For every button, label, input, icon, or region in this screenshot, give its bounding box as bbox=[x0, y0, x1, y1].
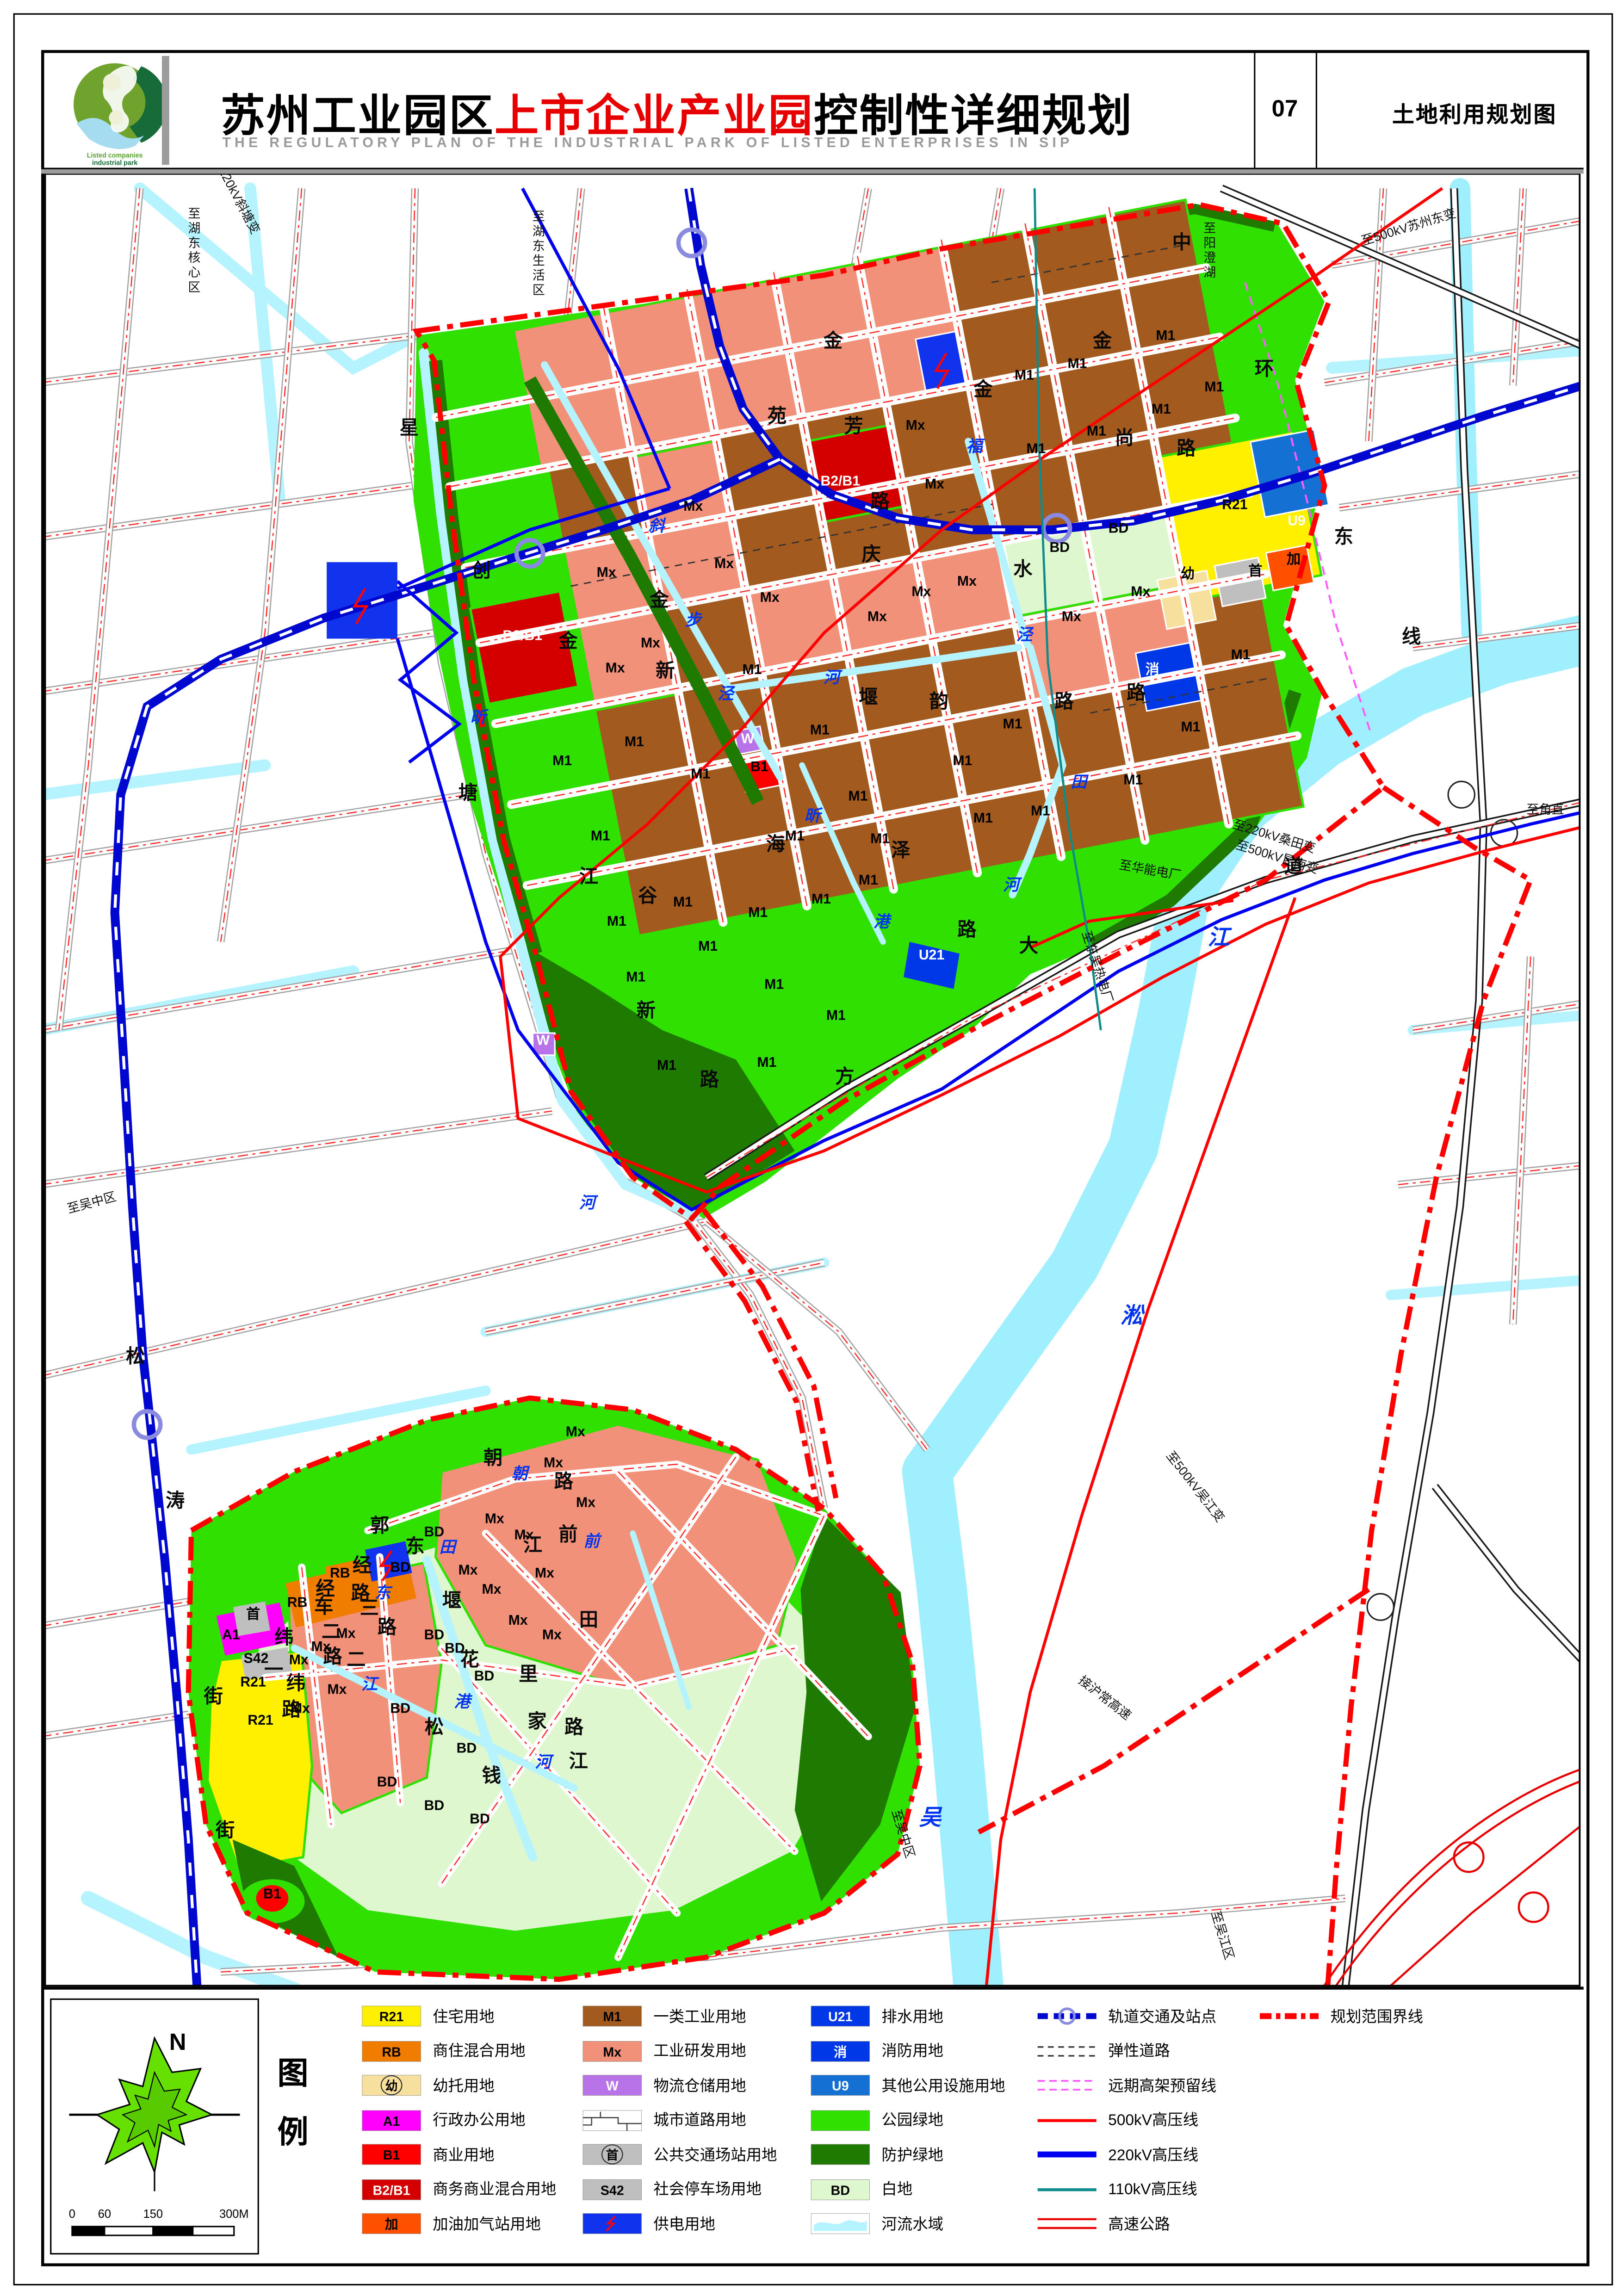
sip-logo: Listed companies industrial park bbox=[56, 56, 197, 168]
legend-label: 高速公路 bbox=[1108, 2213, 1170, 2235]
map-label: 里 bbox=[519, 1664, 538, 1685]
legend-item-500kV高压线: 500kV高压线 bbox=[1038, 2108, 1199, 2132]
map-label: Mx bbox=[542, 1628, 562, 1643]
map-label: 纬 bbox=[286, 1672, 305, 1694]
legend-label: 白地 bbox=[881, 2178, 912, 2200]
map-label: BD bbox=[1050, 540, 1070, 555]
legend-symbol: BD bbox=[811, 2178, 870, 2199]
map-label: 路 bbox=[1054, 691, 1074, 712]
legend-item-220kV高压线: 220kV高压线 bbox=[1038, 2143, 1199, 2166]
svg-text:M1: M1 bbox=[603, 2010, 621, 2024]
map-label: 港 bbox=[454, 1693, 472, 1711]
map-label: M1 bbox=[1026, 441, 1046, 457]
map-label: 幼 bbox=[1181, 566, 1195, 582]
legend-label: 住宅用地 bbox=[433, 2005, 495, 2027]
map-label: W bbox=[741, 731, 755, 746]
svg-text:RB: RB bbox=[382, 2044, 401, 2059]
legend-label: 弹性道路 bbox=[1108, 2040, 1170, 2062]
map-label: M1 bbox=[625, 734, 644, 749]
map-label: 港 bbox=[873, 913, 892, 931]
map-label: 路 bbox=[700, 1069, 719, 1090]
legend-symbol: B2/B1 bbox=[362, 2178, 421, 2199]
legend-symbol: Mx bbox=[583, 2040, 642, 2061]
svg-text:B2/B1: B2/B1 bbox=[373, 2183, 410, 2197]
map-label: 松 bbox=[425, 1716, 444, 1738]
map-label: W bbox=[537, 1033, 550, 1048]
legend-symbol bbox=[1038, 2110, 1096, 2130]
map-label: 家 bbox=[527, 1710, 547, 1732]
map-label: 芳 bbox=[844, 415, 863, 437]
svg-text:W: W bbox=[606, 2079, 619, 2094]
map-label: M1 bbox=[607, 914, 626, 929]
legend-item-U9: U9其他公用设施用地 bbox=[811, 2073, 1005, 2097]
map-label: 经 bbox=[316, 1578, 335, 1599]
map-label: 加 bbox=[1287, 551, 1301, 567]
map-label: 至角直 bbox=[1527, 803, 1564, 817]
map-label: 二 bbox=[347, 1649, 365, 1670]
map-label: 路 bbox=[957, 919, 977, 940]
map-label: M1 bbox=[673, 894, 693, 910]
svg-text:消: 消 bbox=[834, 2044, 847, 2059]
map-label: 金 bbox=[649, 589, 669, 611]
map-label: M1 bbox=[1015, 368, 1034, 383]
legend-label: 规划范围界线 bbox=[1331, 2005, 1423, 2027]
legend-item-远期高架预留线: 远期高架预留线 bbox=[1038, 2073, 1216, 2097]
legend-item-弹性道路: 弹性道路 bbox=[1038, 2039, 1170, 2062]
map-label: 江 bbox=[569, 1750, 588, 1771]
map-label: M1 bbox=[1156, 328, 1175, 343]
map-label: 星 bbox=[400, 417, 419, 438]
map-label: 前 bbox=[583, 1532, 602, 1550]
legend-label: 公共交通场站用地 bbox=[653, 2143, 777, 2166]
map-label: M1 bbox=[811, 891, 831, 907]
header-divider-bar bbox=[162, 56, 169, 165]
map-label: 金 bbox=[1092, 330, 1112, 352]
map-label: 钱 bbox=[482, 1765, 501, 1786]
svg-text:A1: A1 bbox=[383, 2113, 400, 2128]
map-label: Mx bbox=[606, 661, 625, 676]
legend-item-公园绿地: 公园绿地 bbox=[811, 2108, 943, 2132]
svg-text:U9: U9 bbox=[832, 2079, 849, 2094]
legend-item-M1: M1一类工业用地 bbox=[583, 2005, 746, 2028]
map-label: M1 bbox=[785, 828, 805, 843]
legend-label: 加油加气站用地 bbox=[433, 2213, 541, 2235]
legend-symbol bbox=[1038, 2006, 1096, 2027]
legend-label: 社会停车场用地 bbox=[653, 2178, 762, 2200]
map-label: Mx bbox=[683, 499, 703, 514]
svg-text:B1: B1 bbox=[383, 2148, 400, 2163]
map-label: M1 bbox=[1068, 356, 1087, 371]
map-label: 郭 bbox=[370, 1515, 389, 1536]
map-label: 街 bbox=[215, 1819, 235, 1841]
map-label: 泽 bbox=[891, 839, 910, 860]
legend-symbol bbox=[811, 2144, 870, 2165]
legend-symbol: RB bbox=[362, 2040, 421, 2061]
map-label: BD bbox=[424, 1798, 445, 1813]
svg-text:幼: 幼 bbox=[385, 2079, 398, 2093]
legend-symbol bbox=[1038, 2178, 1096, 2199]
map-label: 金 bbox=[973, 379, 993, 400]
legend-symbol: A1 bbox=[362, 2110, 421, 2130]
map-label: BD bbox=[470, 1811, 490, 1826]
map-label: M1 bbox=[552, 753, 572, 768]
legend-symbol bbox=[583, 2213, 642, 2234]
map-label: R21 bbox=[248, 1713, 273, 1728]
map-label: Mx bbox=[566, 1424, 585, 1440]
legend-label: 轨道交通及站点 bbox=[1108, 2005, 1216, 2027]
map-label: 金 bbox=[823, 330, 843, 352]
legend-label: 其他公用设施用地 bbox=[881, 2074, 1005, 2097]
map-label: 海 bbox=[766, 834, 785, 855]
map-label: 堰 bbox=[442, 1590, 461, 1611]
map-label: M1 bbox=[859, 873, 878, 888]
map-label: Mx bbox=[289, 1652, 309, 1668]
map-label: 创 bbox=[471, 560, 491, 581]
map-label: 江 bbox=[1208, 925, 1232, 950]
map-label: Mx bbox=[336, 1626, 356, 1641]
map-label: R21 bbox=[240, 1674, 266, 1690]
map-label: 田 bbox=[579, 1609, 598, 1630]
legend-item-高速公路: 高速公路 bbox=[1038, 2212, 1170, 2235]
map-label: 步 bbox=[685, 611, 703, 629]
svg-text:Mx: Mx bbox=[603, 2044, 621, 2059]
map-label: B1 bbox=[750, 759, 768, 774]
map-label: BD bbox=[1109, 521, 1129, 536]
map-label: 东 bbox=[375, 1584, 393, 1602]
map-label: M1 bbox=[1204, 379, 1224, 395]
legend-label: 商务商业混合用地 bbox=[433, 2178, 556, 2200]
map-label: 田 bbox=[1071, 773, 1089, 791]
legend-label: 排水用地 bbox=[881, 2005, 943, 2027]
logo-text-2: industrial park bbox=[92, 159, 138, 167]
map-label: 道 bbox=[1284, 855, 1303, 877]
map-label: 韵 bbox=[929, 691, 948, 712]
map-label: 路 bbox=[1127, 682, 1146, 703]
legend-symbol bbox=[583, 2110, 642, 2130]
legend-symbol: M1 bbox=[583, 2006, 642, 2027]
map-label: Mx bbox=[641, 636, 660, 651]
map-label: 路 bbox=[554, 1471, 574, 1492]
title-part-1: 苏州工业园区 bbox=[221, 93, 495, 141]
legend-symbol: B1 bbox=[362, 2144, 421, 2165]
map-label: Mx bbox=[514, 1527, 533, 1542]
legend-item-B2/B1: B2/B1商务商业混合用地 bbox=[362, 2177, 557, 2201]
map-label: M1 bbox=[1231, 647, 1251, 662]
map-label: M1 bbox=[973, 811, 993, 826]
map-label: M1 bbox=[1031, 803, 1050, 818]
map-label: Mx bbox=[544, 1455, 563, 1470]
map-label: 经 bbox=[353, 1554, 372, 1576]
map-label: 谷 bbox=[638, 885, 657, 906]
map-label: Mx bbox=[311, 1639, 330, 1654]
page-title: 苏州工业园区上市企业产业园控制性详细规划 bbox=[221, 80, 1133, 144]
map-label: 淞 bbox=[1121, 1304, 1145, 1328]
land-use-map: 至220kV斜塘变至湖东核心区至湖东生活区至阳澄湖至500kV苏州东变至角直至2… bbox=[44, 173, 1580, 1987]
map-label: M1 bbox=[698, 939, 718, 954]
map-label: 至湖东生活区 bbox=[533, 210, 545, 297]
map-label: 福 bbox=[966, 438, 985, 456]
map-label: 朝 bbox=[483, 1447, 502, 1468]
map-label: B2/B1 bbox=[502, 628, 542, 644]
header-bottom-rule bbox=[41, 168, 1584, 174]
map-label: M1 bbox=[591, 828, 610, 843]
legend-label: 防护绿地 bbox=[881, 2143, 943, 2166]
legend-item-RB: RB商住混合用地 bbox=[362, 2039, 526, 2062]
legend-label: 供电用地 bbox=[653, 2213, 715, 2235]
map-label: 线 bbox=[1402, 626, 1421, 647]
legend-label: 城市道路用地 bbox=[653, 2109, 746, 2131]
legend-symbol bbox=[1038, 2040, 1096, 2061]
legend-symbol: 加 bbox=[362, 2213, 421, 2234]
legend-symbol bbox=[811, 2110, 870, 2130]
map-label: R21 bbox=[1222, 497, 1247, 513]
legend-item-河流水域: 河流水域 bbox=[811, 2212, 943, 2235]
map-label: Mx bbox=[597, 565, 616, 580]
map-label: U21 bbox=[919, 947, 944, 963]
legend-symbol bbox=[811, 2213, 870, 2234]
map-label: Mx bbox=[867, 609, 887, 624]
map-label: RB bbox=[330, 1566, 350, 1581]
map-label: 至阳澄湖 bbox=[1203, 222, 1216, 279]
svg-text:首: 首 bbox=[606, 2148, 619, 2162]
svg-text:U21: U21 bbox=[828, 2010, 853, 2024]
map-label: Mx bbox=[458, 1563, 478, 1578]
sheet-number: 07 bbox=[1254, 97, 1316, 124]
map-label: 纬 bbox=[274, 1627, 293, 1648]
map-label: 斜 bbox=[648, 517, 666, 535]
map-label: U9 bbox=[1288, 514, 1306, 529]
map-label: 前 bbox=[558, 1524, 577, 1545]
legend-item-规划范围界线: 规划范围界线 bbox=[1260, 2005, 1423, 2028]
page-subtitle: THE REGULATORY PLAN OF THE INDUSTRIAL PA… bbox=[222, 136, 1073, 152]
map-label: BD bbox=[390, 1560, 410, 1575]
legend-item-供电用地: 供电用地 bbox=[583, 2212, 715, 2235]
legend-symbol bbox=[1038, 2144, 1096, 2165]
map-label: 松 bbox=[126, 1346, 145, 1367]
legend-item-防护绿地: 防护绿地 bbox=[811, 2143, 943, 2166]
map-label: Mx bbox=[576, 1495, 595, 1510]
map-label: B2/B1 bbox=[821, 474, 861, 489]
legend-label: 公园绿地 bbox=[881, 2109, 943, 2131]
map-label: M1 bbox=[849, 788, 868, 804]
legend-label: 一类工业用地 bbox=[653, 2005, 746, 2027]
map-label: Mx bbox=[760, 590, 780, 605]
legend-label: 幼托用地 bbox=[433, 2074, 495, 2097]
map-label: M1 bbox=[1087, 424, 1106, 439]
legend-symbol: 消 bbox=[811, 2040, 870, 2061]
map-label: 环 bbox=[1255, 358, 1274, 379]
map-label: A1 bbox=[222, 1628, 240, 1643]
map-label: 东 bbox=[405, 1535, 424, 1557]
map-label: M1 bbox=[1123, 772, 1143, 787]
map-label: M1 bbox=[1152, 402, 1171, 417]
map-label: 消 bbox=[1146, 662, 1159, 677]
map-label: 路 bbox=[378, 1616, 397, 1638]
legend-label: 行政办公用地 bbox=[433, 2109, 525, 2131]
map-label: Mx bbox=[1131, 584, 1150, 599]
map-label: M1 bbox=[810, 722, 830, 737]
map-label: 大 bbox=[1019, 935, 1038, 956]
map-label: M1 bbox=[626, 970, 645, 985]
title-part-2: 上市企业产业园 bbox=[495, 93, 814, 141]
legend-item-W: W物流仓储用地 bbox=[583, 2073, 746, 2097]
legend-item-加: 加加油加气站用地 bbox=[362, 2212, 541, 2235]
map-label: Mx bbox=[327, 1682, 347, 1697]
map-label: M1 bbox=[691, 767, 710, 782]
map-label: 方 bbox=[835, 1066, 854, 1087]
legend-symbol bbox=[1038, 2213, 1096, 2234]
map-label: M1 bbox=[870, 831, 890, 847]
map-label: RB bbox=[287, 1595, 308, 1610]
map-label: Mx bbox=[906, 418, 925, 433]
header: Listed companies industrial park 苏州工业园区上… bbox=[44, 53, 1580, 169]
map-label: M1 bbox=[826, 1008, 846, 1023]
map-label: 中 bbox=[1172, 232, 1191, 253]
map-label: 田 bbox=[440, 1538, 458, 1556]
map-label: M1 bbox=[1003, 717, 1022, 732]
legend-item-幼: 幼幼托用地 bbox=[362, 2073, 495, 2097]
legend-label: 河流水域 bbox=[881, 2213, 943, 2235]
map-label: 苑 bbox=[768, 405, 787, 427]
map-label: 东 bbox=[1334, 526, 1353, 547]
map-label: BD bbox=[474, 1669, 495, 1684]
svg-text:R21: R21 bbox=[379, 2010, 404, 2024]
map-label: Mx bbox=[925, 477, 944, 492]
map-label: 涛 bbox=[166, 1490, 185, 1511]
map-label: BD bbox=[390, 1701, 410, 1716]
legend-item-S42: S42社会停车场用地 bbox=[583, 2177, 762, 2201]
map-label: 江 bbox=[579, 866, 598, 887]
map-label: 昕 bbox=[470, 708, 489, 726]
map-label: Mx bbox=[1062, 609, 1081, 624]
map-label: Mx bbox=[957, 574, 977, 589]
legend-label: 220kV高压线 bbox=[1108, 2143, 1198, 2166]
map-label: 至湖东核心区 bbox=[188, 207, 200, 294]
map-label: 首 bbox=[246, 1606, 260, 1622]
map-label: Mx bbox=[535, 1566, 554, 1581]
legend-label: 物流仓储用地 bbox=[653, 2074, 746, 2097]
legend-symbol: W bbox=[583, 2075, 642, 2096]
map-label: 路 bbox=[871, 490, 890, 512]
svg-text:S42: S42 bbox=[601, 2183, 624, 2197]
legend-label: 500kV高压线 bbox=[1108, 2109, 1198, 2131]
map-label: M1 bbox=[1181, 719, 1200, 735]
map-label: 朝 bbox=[511, 1465, 530, 1483]
map-label: 昕 bbox=[804, 807, 823, 825]
map-label: 金 bbox=[558, 631, 578, 652]
map-label: Mx bbox=[508, 1613, 528, 1628]
legend-item-Mx: Mx工业研发用地 bbox=[583, 2039, 746, 2062]
map-label: 新 bbox=[656, 660, 675, 681]
legend-symbol: S42 bbox=[583, 2178, 642, 2199]
legend-item-U21: U21排水用地 bbox=[811, 2005, 943, 2028]
plan-sheet: Listed companies industrial park 苏州工业园区上… bbox=[0, 0, 1623, 2296]
map-label: B1 bbox=[263, 1886, 281, 1901]
map-label: Mx bbox=[485, 1511, 504, 1526]
map-label: M1 bbox=[757, 1055, 776, 1070]
legend-item-消: 消消防用地 bbox=[811, 2039, 943, 2062]
legend-label: 商住混合用地 bbox=[433, 2040, 525, 2062]
legend-label: 商业用地 bbox=[433, 2143, 495, 2166]
legend-symbol bbox=[1038, 2075, 1096, 2096]
map-label: 水 bbox=[1013, 558, 1033, 580]
map-label: M1 bbox=[953, 753, 972, 768]
map-label: S42 bbox=[244, 1651, 269, 1666]
svg-text:BD: BD bbox=[831, 2183, 850, 2197]
sheet-title: 土地利用规划图 bbox=[1331, 99, 1619, 130]
map-label: M1 bbox=[657, 1058, 676, 1073]
map-label: 街 bbox=[204, 1685, 223, 1707]
legend-item-城市道路用地: 城市道路用地 bbox=[583, 2108, 746, 2132]
map-label: 路 bbox=[564, 1716, 584, 1738]
legend-item-B1: B1商业用地 bbox=[362, 2143, 495, 2166]
map-label: M1 bbox=[764, 977, 784, 992]
legend-symbol: U21 bbox=[811, 2006, 870, 2027]
legend-symbol: U9 bbox=[811, 2075, 870, 2096]
map-label: BD bbox=[424, 1524, 445, 1540]
map-label: 塘 bbox=[458, 782, 477, 803]
legend-item-R21: R21住宅用地 bbox=[362, 2005, 495, 2028]
title-part-3: 控制性详细规划 bbox=[814, 93, 1133, 141]
map-label: 新 bbox=[637, 1000, 656, 1021]
map-label: Mx bbox=[291, 1701, 310, 1716]
map-label: 江 bbox=[361, 1675, 379, 1693]
legend-panel: N 060150300M 图例 R21住宅用地RB商住混合用地幼幼托用地A1行政… bbox=[41, 1987, 1584, 2263]
legend-item-110kV高压线: 110kV高压线 bbox=[1038, 2177, 1197, 2201]
map-label: 堰 bbox=[859, 687, 878, 708]
legend-label: 消防用地 bbox=[881, 2040, 943, 2062]
map-label: M1 bbox=[748, 905, 768, 920]
map-label: BD bbox=[424, 1628, 445, 1643]
map-label: 庆 bbox=[861, 544, 881, 565]
map-label: 泾 bbox=[718, 685, 736, 703]
legend-symbol: R21 bbox=[362, 2006, 421, 2027]
logo-text-1: Listed companies bbox=[87, 152, 143, 159]
legend-label: 远期高架预留线 bbox=[1108, 2074, 1216, 2097]
legend-item-BD: BD白地 bbox=[811, 2177, 912, 2201]
legend-symbol: 首 bbox=[583, 2144, 642, 2165]
map-label: Mx bbox=[714, 556, 734, 571]
map-label: Mx bbox=[482, 1582, 501, 1597]
map-label: 吴 bbox=[919, 1805, 943, 1830]
map-label: 泾 bbox=[1016, 626, 1034, 644]
svg-text:加: 加 bbox=[385, 2217, 398, 2232]
map-label: 首 bbox=[1248, 563, 1262, 579]
legend-symbol: 幼 bbox=[362, 2075, 421, 2096]
map-label: 路 bbox=[1177, 438, 1196, 459]
legend-item-A1: A1行政办公用地 bbox=[362, 2108, 526, 2132]
legend-label: 110kV高压线 bbox=[1108, 2178, 1197, 2200]
legend-item-首: 首公共交通场站用地 bbox=[583, 2143, 777, 2166]
legend-label: 工业研发用地 bbox=[653, 2040, 746, 2062]
map-label: BD bbox=[445, 1640, 465, 1656]
legend-symbol bbox=[1260, 2006, 1319, 2027]
map-label: Mx bbox=[911, 584, 931, 599]
map-label: 尚 bbox=[1115, 427, 1134, 449]
map-label: BD bbox=[457, 1741, 477, 1756]
map-label: BD bbox=[377, 1775, 397, 1790]
map-label: M1 bbox=[743, 662, 762, 677]
legend-item-轨道交通及站点: 轨道交通及站点 bbox=[1038, 2005, 1216, 2028]
